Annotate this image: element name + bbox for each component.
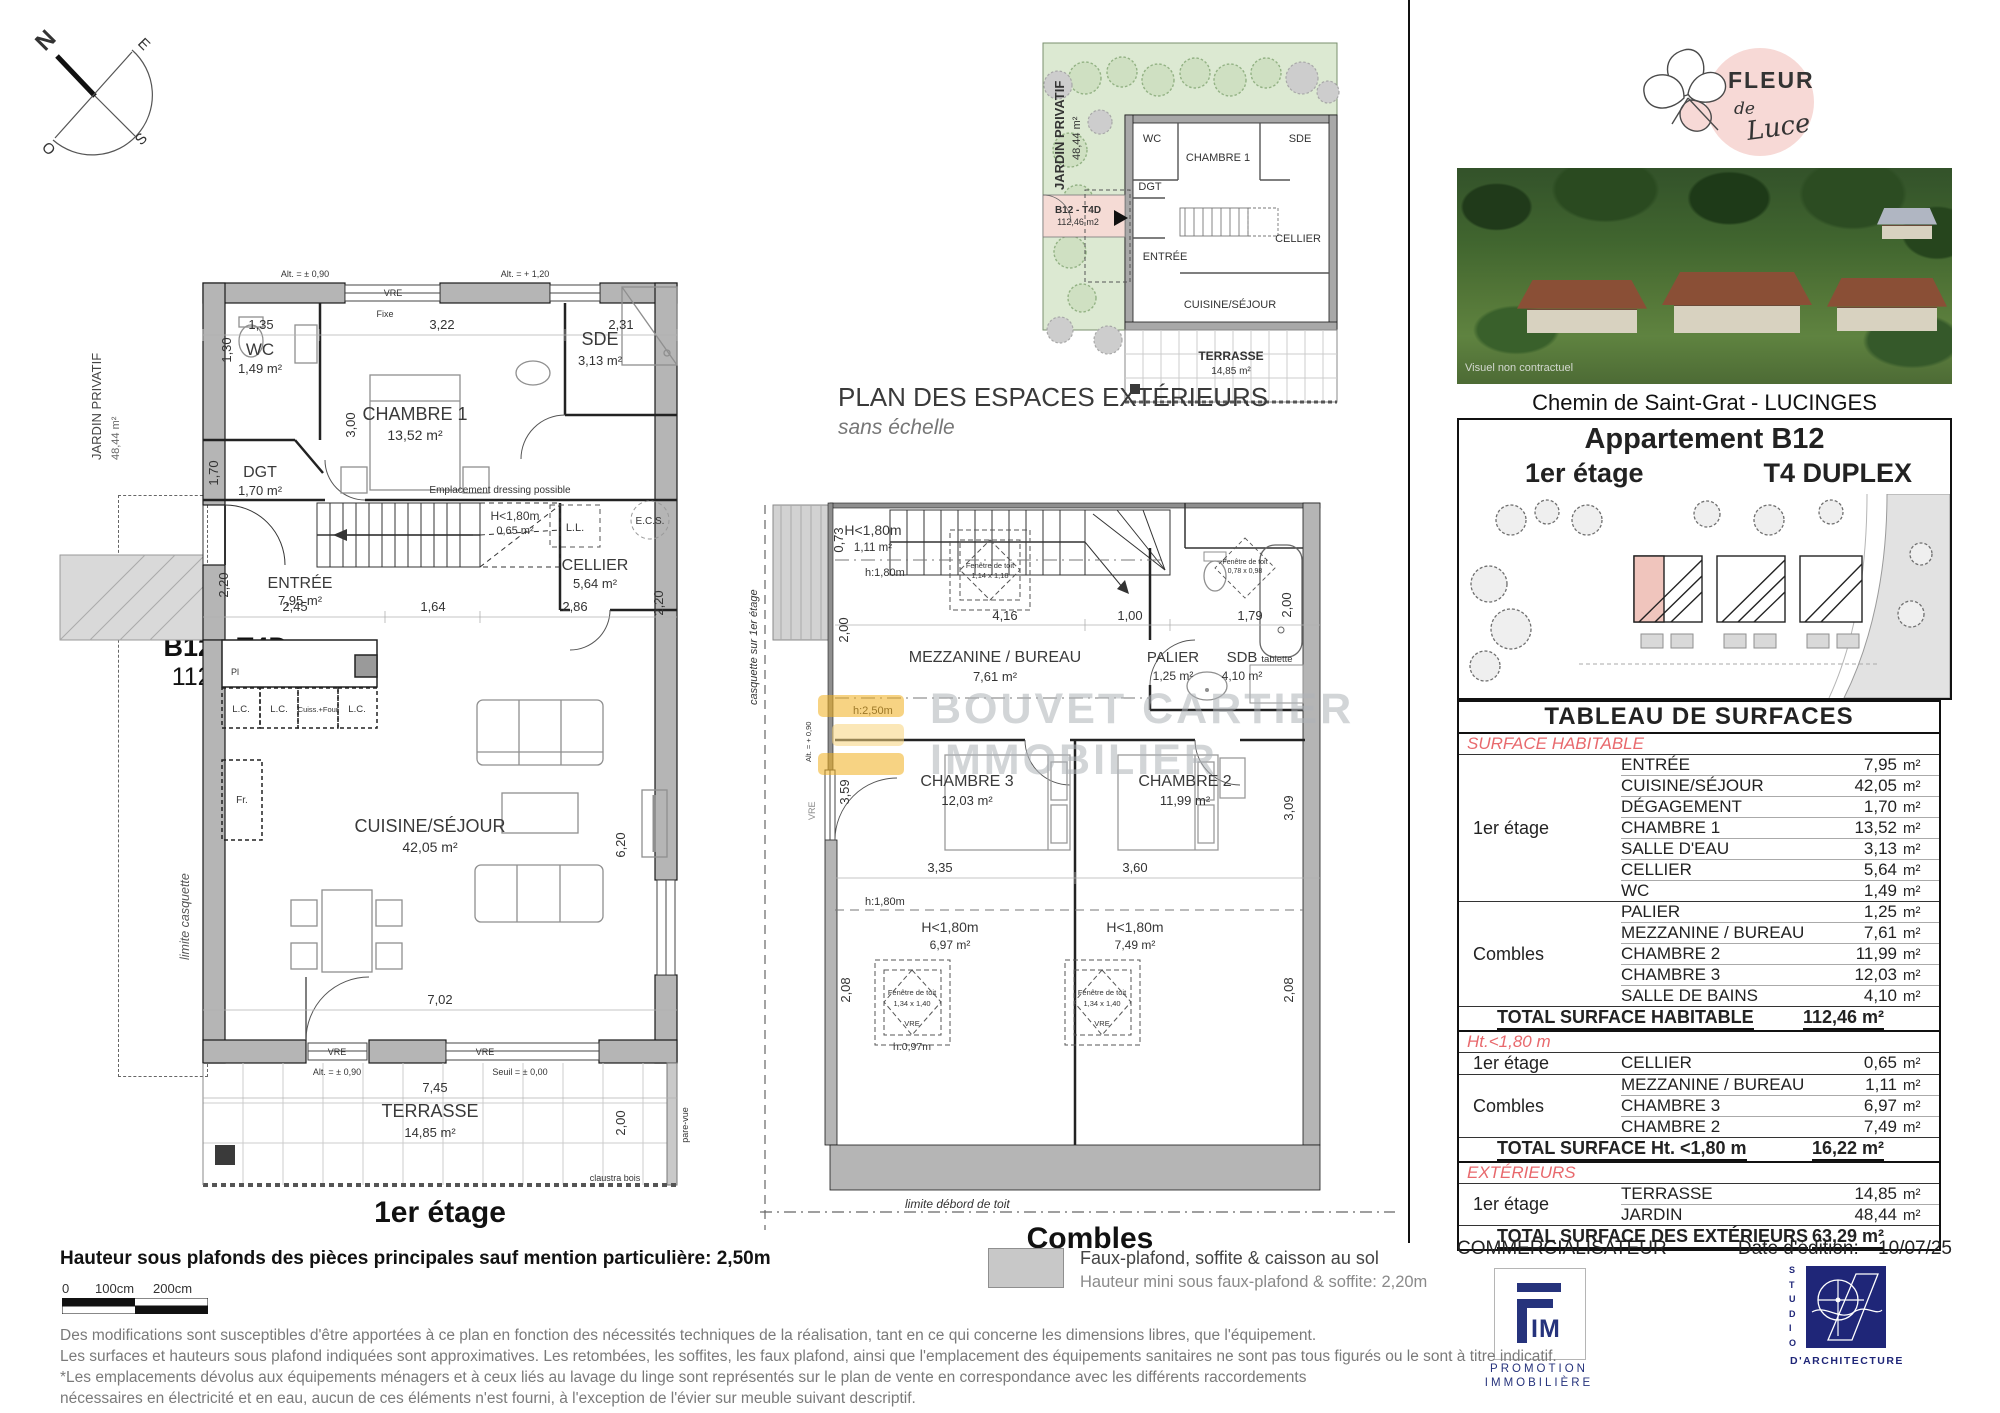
fleur-logo-icon: FLEUR de Luce (1632, 36, 1852, 168)
room-cellier: CELLIER (562, 557, 629, 574)
total-label: TOTAL SURFACE Ht. <1,80 m (1497, 1138, 1747, 1161)
compass-icon: N E S O (15, 8, 180, 173)
section-habitable: SURFACE HABITABLE (1459, 734, 1939, 755)
total-habitable: TOTAL SURFACE HABITABLE 112,46 m² (1459, 1007, 1939, 1032)
table-row: SALLE D'EAU3,13m² (1621, 839, 1939, 860)
compass-east-label: E (134, 35, 153, 54)
group-1er-etage-ext: 1er étage TERRASSE14,85m² JARDIN48,44m² (1459, 1184, 1939, 1226)
lc-label-1: L.C. (232, 704, 249, 715)
group-1er-etage-ht: 1er étage CELLIER0,65m² (1459, 1053, 1939, 1075)
cdim-359: 3,59 (837, 779, 852, 804)
row-value: 11,99 (1827, 944, 1897, 964)
table-row: TERRASSE14,85m² (1621, 1184, 1939, 1205)
vre-3: VRE (476, 1047, 495, 1057)
row-value: 7,49 (1827, 1117, 1897, 1137)
cuiss-four-label: Cuiss.+Four (298, 705, 339, 714)
croom-h180top-area: 1,11 m² (854, 542, 892, 554)
table-row: CUISINE/SÉJOUR42,05m² (1621, 776, 1939, 797)
croom-chambre3-area: 12,03 m² (941, 793, 993, 808)
mini-jardin-title: JARDIN PRIVATIF (1052, 81, 1067, 190)
row-name: CHAMBRE 3 (1621, 965, 1827, 985)
alt-090-terr: Alt. = ± 0,90 (313, 1067, 361, 1077)
row-name: WC (1621, 881, 1827, 901)
row-unit: m² (1897, 1055, 1939, 1072)
row-name: SALLE D'EAU (1621, 839, 1827, 859)
mini-unit-area: 112,46 m2 (1057, 217, 1099, 227)
combles-room-labels: H<1,80m 1,11 m² MEZZANINE / BUREAU 7,61 … (844, 522, 1262, 952)
row-value: 13,52 (1827, 818, 1897, 838)
mini-jardin-area: 48,44 m² (1071, 116, 1083, 160)
croom-h180top: H<1,80m (844, 522, 901, 538)
croom-sdb: SDB (1227, 649, 1258, 666)
height-note: Hauteur sous plafonds des pièces princip… (60, 1248, 771, 1270)
table-row: JARDIN48,44m² (1621, 1205, 1939, 1225)
total-ht180: TOTAL SURFACE Ht. <1,80 m 16,22 m² (1459, 1138, 1939, 1163)
row-name: PALIER (1621, 902, 1827, 922)
legend-swatch (988, 1248, 1064, 1288)
row-unit: m² (1897, 988, 1939, 1005)
section-exterieurs: EXTÉRIEURS (1459, 1163, 1939, 1184)
room-wc: WC (246, 340, 274, 359)
row-value: 4,10 (1827, 986, 1897, 1006)
row-unit: m² (1897, 967, 1939, 984)
table-row: CHAMBRE 312,03m² (1621, 965, 1939, 986)
mini-cellier: CELLIER (1275, 233, 1321, 245)
room-h180-area: 0,65 m² (496, 525, 534, 537)
plan-ext-title: PLAN DES ESPACES EXTÉRIEURS (838, 382, 1268, 413)
combles-vre-left: VRE (807, 801, 817, 820)
parevue-label: pare-vue (680, 1107, 690, 1143)
row-unit: m² (1897, 841, 1939, 858)
row-unit: m² (1897, 925, 1939, 942)
date-label: Date d'édition: (1738, 1238, 1859, 1259)
row-name: CHAMBRE 3 (1621, 1096, 1827, 1116)
site-plan (1457, 494, 1952, 700)
cdim-335: 3,35 (927, 860, 952, 875)
mini-chambre1: CHAMBRE 1 (1186, 152, 1250, 164)
table-row: MEZZANINE / BUREAU7,61m² (1621, 923, 1939, 944)
row-name: CELLIER (1621, 1053, 1827, 1073)
row-value: 12,03 (1827, 965, 1897, 985)
plan-ext-caption: PLAN DES ESPACES EXTÉRIEURS sans échelle (838, 382, 1268, 440)
row-name: SALLE DE BAINS (1621, 986, 1827, 1006)
cdim-208r: 2,08 (1281, 977, 1296, 1002)
table-row: WC1,49m² (1621, 881, 1939, 901)
dim-170: 1,70 (206, 460, 221, 485)
dim-220a: 2,20 (216, 572, 231, 597)
row-unit: m² (1897, 883, 1939, 900)
croom-mezzanine-area: 7,61 m² (973, 669, 1018, 684)
group-label: Combles (1459, 902, 1621, 1006)
floor-plan-sheet: N E S O JARDIN PRIVATIF 48,44 m² B12 - T… (0, 0, 2000, 1413)
kitchen-counter (222, 640, 377, 840)
cdim-200r: 2,00 (1279, 592, 1294, 617)
row-unit: m² (1897, 1098, 1939, 1115)
date-value: 10/07/25 (1878, 1238, 1952, 1259)
room-terrasse: TERRASSE (381, 1101, 478, 1121)
fdt2-size: 0,78 x 0,98 (1228, 568, 1263, 575)
table-row: CELLIER5,64m² (1621, 860, 1939, 881)
dim-220b: 2,20 (651, 590, 666, 615)
surface-table: TABLEAU DE SURFACES SURFACE HABITABLE 1e… (1457, 700, 1941, 1251)
row-value: 5,64 (1827, 860, 1897, 880)
alt-120-top: Alt. = + 1,20 (501, 269, 550, 279)
apartment-title: Appartement B12 (1459, 423, 1950, 456)
croom-h180c3-area: 6,97 m² (930, 938, 971, 952)
row-unit: m² (1897, 862, 1939, 879)
combles-dim-texts: 0,73 2,00 4,16 1,00 1,79 2,00 3,59 3,09 … (831, 527, 1296, 1002)
vre-1: VRE (384, 288, 403, 298)
row-name: CHAMBRE 2 (1621, 944, 1827, 964)
exterior-hatch (60, 555, 203, 640)
mini-cuisine: CUISINE/SÉJOUR (1184, 298, 1276, 311)
row-value: 42,05 (1827, 776, 1897, 796)
total-label: TOTAL SURFACE HABITABLE (1497, 1007, 1754, 1030)
row-value: 1,70 (1827, 797, 1897, 817)
room-entree-area: 7,95 m² (278, 593, 323, 608)
casquette-label: casquette sur 1er étage (748, 589, 760, 705)
dim-300: 3,00 (343, 412, 358, 437)
croom-h180c3: H<1,80m (921, 919, 978, 935)
croom-h180c2: H<1,80m (1106, 919, 1163, 935)
alt-090-top: Alt. = ± 0,90 (281, 269, 329, 279)
disclaimer-line: nécessaires en électricité et en eau, au… (60, 1388, 1557, 1409)
total-value: 112,46 m² (1803, 1007, 1884, 1030)
table-row: ENTRÉE7,95m² (1621, 755, 1939, 776)
plan-ext-subtitle: sans échelle (838, 416, 1268, 440)
photo-chalet (1662, 272, 1812, 332)
mini-sde: SDE (1289, 133, 1312, 145)
row-name: ENTRÉE (1621, 755, 1827, 775)
faux-plafond-legend: Faux-plafond, soffite & caisson au sol H… (988, 1248, 1427, 1292)
dim-200: 2,00 (613, 1110, 628, 1135)
site-buildings (1579, 556, 1879, 664)
row-unit: m² (1897, 1186, 1939, 1203)
room-chambre1-area: 13,52 m² (387, 427, 443, 443)
room-sde-area: 3,13 m² (578, 353, 623, 368)
apartment-type: T4 DUPLEX (1763, 458, 1912, 489)
row-name: MEZZANINE / BUREAU (1621, 923, 1827, 943)
row-value: 48,44 (1827, 1205, 1897, 1225)
croom-chambre2-area: 11,99 m² (1160, 793, 1211, 808)
project-address: Chemin de Saint-Grat - LUCINGES (1457, 390, 1952, 416)
row-value: 3,13 (1827, 839, 1897, 859)
dim-620: 6,20 (613, 832, 628, 857)
surface-table-title: TABLEAU DE SURFACES (1459, 702, 1939, 734)
row-value: 7,61 (1827, 923, 1897, 943)
dim-322: 3,22 (429, 317, 454, 332)
studio-logo-icon (1806, 1266, 1886, 1348)
croom-sdb-area: 4,10 m² (1222, 669, 1263, 683)
fdt3b-label: Fenêtre de toit (1078, 988, 1127, 997)
photo-chalet (1517, 280, 1647, 332)
disclaimer-line: Les surfaces et hauteurs sous plafond in… (60, 1346, 1557, 1367)
claustra-label: claustra bois (590, 1173, 641, 1183)
room-labels: WC 1,49 m² DGT 1,70 m² CHAMBRE 1 13,52 m… (238, 329, 628, 1140)
row-value: 6,97 (1827, 1096, 1897, 1116)
fdt3a-label: Fenêtre de toit (888, 988, 937, 997)
group-combles-ht: Combles MEZZANINE / BUREAU1,11m² CHAMBRE… (1459, 1075, 1939, 1138)
room-cuisine: CUISINE/SÉJOUR (354, 816, 505, 836)
row-unit: m² (1897, 820, 1939, 837)
legend-line2: Hauteur mini sous faux-plafond & soffite… (1080, 1273, 1427, 1292)
furniture (239, 287, 677, 972)
combles-alt-label: Alt. = + 0,90 (804, 722, 813, 762)
svg-text:FLEUR: FLEUR (1728, 67, 1815, 93)
group-label: 1er étage (1459, 1053, 1621, 1074)
room-entree: ENTRÉE (268, 573, 333, 592)
photo-chalet (1877, 208, 1937, 238)
disclaimer: Des modifications sont susceptibles d'êt… (60, 1325, 1557, 1409)
row-name: CUISINE/SÉJOUR (1621, 776, 1827, 796)
scale-200: 200cm (153, 1281, 192, 1296)
row-name: MEZZANINE / BUREAU (1621, 1075, 1827, 1095)
seuil-label: Seuil = ± 0,00 (492, 1067, 547, 1077)
table-row: MEZZANINE / BUREAU1,11m² (1621, 1075, 1939, 1096)
studio-logo (1806, 1266, 1886, 1348)
vre-2: VRE (328, 1047, 347, 1057)
mini-building: WC CHAMBRE 1 SDE DGT ENTRÉE CELLIER CUIS… (1125, 115, 1337, 330)
studio-vertical-label: STUDIO (1789, 1266, 1796, 1348)
room-wc-area: 1,49 m² (238, 361, 283, 376)
dim-702: 7,02 (427, 992, 452, 1007)
fixe-label: Fixe (376, 309, 393, 319)
row-unit: m² (1897, 778, 1939, 795)
group-label: 1er étage (1459, 755, 1621, 901)
cdim-208l: 2,08 (838, 977, 853, 1002)
room-sde: SDE (581, 329, 618, 349)
limite-debord-label: limite débord de toit (905, 1197, 1010, 1211)
combles-left-window (825, 770, 897, 840)
row-unit: m² (1897, 757, 1939, 774)
room-terrasse-area: 14,85 m² (404, 1125, 456, 1140)
table-row: DÉGAGEMENT1,70m² (1621, 797, 1939, 818)
lc-label-3: L.C. (348, 704, 365, 715)
fdt1-size: 1,14 x 1,18 (971, 571, 1008, 580)
scale-0: 0 (62, 1281, 95, 1296)
panel-divider (1408, 0, 1410, 1243)
plan-first-floor: L.C. L.C. Cuiss.+Four L.C. Fr. Pl L.L. E… (55, 255, 705, 1240)
entry-door (203, 505, 285, 565)
row-unit: m² (1897, 799, 1939, 816)
row-unit: m² (1897, 946, 1939, 963)
table-row: CHAMBRE 27,49m² (1621, 1117, 1939, 1137)
row-unit: m² (1897, 904, 1939, 921)
mini-entree: ENTRÉE (1143, 250, 1188, 263)
fdt2-label: Fenêtre de toit (1222, 559, 1267, 566)
croom-h180c2-area: 7,49 m² (1115, 938, 1156, 952)
cdim-360: 3,60 (1122, 860, 1147, 875)
fdt1-label: Fenêtre de toit (966, 561, 1015, 570)
table-row: CELLIER0,65m² (1621, 1053, 1939, 1073)
compass-north-label: N (30, 25, 61, 56)
fridge-label: Fr. (236, 795, 248, 806)
room-dgt: DGT (243, 464, 277, 481)
scale-100: 100cm (95, 1281, 153, 1296)
row-name: CHAMBRE 1 (1621, 818, 1827, 838)
row-name: TERRASSE (1621, 1184, 1827, 1204)
dim-286: 2,86 (562, 599, 587, 614)
apartment-floor: 1er étage (1525, 458, 1644, 489)
row-value: 1,49 (1827, 881, 1897, 901)
cdim-309: 3,09 (1281, 795, 1296, 820)
lc-label-2: L.C. (270, 704, 287, 715)
pl-label: Pl (231, 667, 239, 677)
cdim-200l: 2,00 (836, 617, 851, 642)
studio-label: D'ARCHITECTURE (1790, 1355, 1902, 1367)
croom-chambre2: CHAMBRE 2 (1138, 773, 1231, 790)
fdt3a-size: 1,34 x 1,40 (893, 999, 930, 1008)
room-dgt-area: 1,70 m² (238, 483, 283, 498)
room-chambre1: CHAMBRE 1 (362, 404, 467, 424)
room-cellier-area: 5,64 m² (573, 576, 618, 591)
row-value: 14,85 (1827, 1184, 1897, 1204)
table-row: CHAMBRE 113,52m² (1621, 818, 1939, 839)
dim-135: 1,35 (248, 317, 273, 332)
group-1er-etage: 1er étage ENTRÉE7,95m² CUISINE/SÉJOUR42,… (1459, 755, 1939, 902)
row-unit: m² (1897, 1207, 1939, 1224)
croom-palier-area: 1,25 m² (1153, 669, 1194, 683)
cdim-100: 1,00 (1117, 608, 1142, 623)
dim-130: 1,30 (219, 337, 234, 362)
door-arcs (306, 415, 610, 1040)
commercialisateur-label: COMMERCIALISATEUR (1457, 1238, 1667, 1260)
fleur-de-luce-logo: FLEUR de Luce (1632, 36, 1852, 168)
ecs-label: E.C.S. (636, 516, 665, 527)
edition-date: Date d'édition: 10/07/25 (1738, 1238, 1952, 1260)
dressing-note: Emplacement dressing possible (429, 485, 571, 496)
croom-chambre3: CHAMBRE 3 (920, 773, 1013, 790)
room-h180: H<1,80m (490, 509, 539, 523)
row-value: 0,65 (1827, 1053, 1897, 1073)
scale-bar-icon (62, 1298, 208, 1314)
row-unit: m² (1897, 1119, 1939, 1136)
total-value: 16,22 m² (1812, 1138, 1884, 1161)
fdt3a-vre: VRE (904, 1019, 919, 1028)
row-name: DÉGAGEMENT (1621, 797, 1827, 817)
mini-terrasse: TERRASSE (1198, 349, 1263, 363)
fdt3b-size: 1,34 x 1,40 (1083, 999, 1120, 1008)
commercial-line: COMMERCIALISATEUR Date d'édition: 10/07/… (1457, 1238, 1952, 1260)
legend-line1: Faux-plafond, soffite & caisson au sol (1080, 1248, 1427, 1269)
mini-dgt: DGT (1138, 181, 1162, 193)
casquette-band (773, 505, 830, 640)
group-label: 1er étage (1459, 1184, 1621, 1225)
cdim-416: 4,16 (992, 608, 1017, 623)
ll-label: L.L. (566, 522, 584, 534)
disclaimer-line: *Les emplacements dévolus aux équipement… (60, 1367, 1557, 1388)
h097-label: h:0,97m (893, 1041, 931, 1053)
table-row: CHAMBRE 211,99m² (1621, 944, 1939, 965)
row-name: CELLIER (1621, 860, 1827, 880)
row-unit: m² (1897, 1077, 1939, 1094)
section-ht180: Ht.<1,80 m (1459, 1032, 1939, 1053)
table-row: CHAMBRE 36,97m² (1621, 1096, 1939, 1117)
mini-terrasse-area: 14,85 m² (1211, 366, 1251, 377)
photo-chalet (1827, 278, 1947, 330)
project-photo: Visuel non contractuel (1457, 168, 1952, 384)
dim-164: 1,64 (420, 599, 445, 614)
row-value: 1,11 (1827, 1075, 1897, 1095)
group-combles: Combles PALIER1,25m² MEZZANINE / BUREAU7… (1459, 902, 1939, 1007)
compass-south-label: S (132, 130, 151, 149)
h180-top-label: h:1,80m (865, 567, 905, 579)
row-value: 1,25 (1827, 902, 1897, 922)
row-name: CHAMBRE 2 (1621, 1117, 1827, 1137)
mini-wc: WC (1143, 133, 1161, 145)
table-row: SALLE DE BAINS4,10m² (1621, 986, 1939, 1006)
h250-label: h:2,50m (853, 705, 893, 717)
row-name: JARDIN (1621, 1205, 1827, 1225)
croom-mezzanine: MEZZANINE / BUREAU (909, 649, 1081, 666)
plan1-caption: 1er étage (330, 1196, 550, 1230)
scale-bar: 0 100cm 200cm (62, 1281, 262, 1319)
disclaimer-line: Des modifications sont susceptibles d'êt… (60, 1325, 1557, 1346)
dim-745: 7,45 (422, 1080, 447, 1095)
photo-caption: Visuel non contractuel (1465, 362, 1573, 374)
combles-walls (825, 503, 1320, 1190)
room-cuisine-area: 42,05 m² (402, 839, 458, 855)
plan-combles: casquette sur 1er étage VRE Alt. = + 0,9… (745, 490, 1415, 1260)
table-row: PALIER1,25m² (1621, 902, 1939, 923)
apartment-header: Appartement B12 1er étage T4 DUPLEX (1457, 418, 1952, 496)
tablette-label: tablette (1261, 654, 1292, 665)
group-label: Combles (1459, 1075, 1621, 1137)
fdt3b-vre: VRE (1094, 1019, 1109, 1028)
cdim-179: 1,79 (1237, 608, 1262, 623)
row-value: 7,95 (1827, 755, 1897, 775)
h180-low-label: h:1,80m (865, 896, 905, 908)
site-plan-drawing (1459, 494, 1950, 698)
croom-palier: PALIER (1147, 649, 1199, 666)
mini-unit-id: B12 - T4D (1055, 205, 1101, 216)
